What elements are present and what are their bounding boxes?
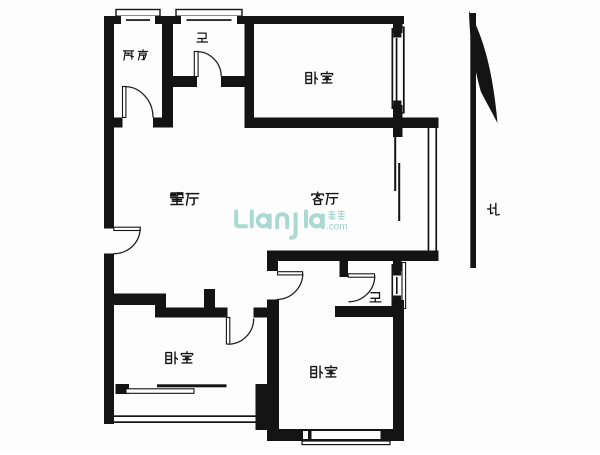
svg-text:.com: .com [326,222,348,233]
